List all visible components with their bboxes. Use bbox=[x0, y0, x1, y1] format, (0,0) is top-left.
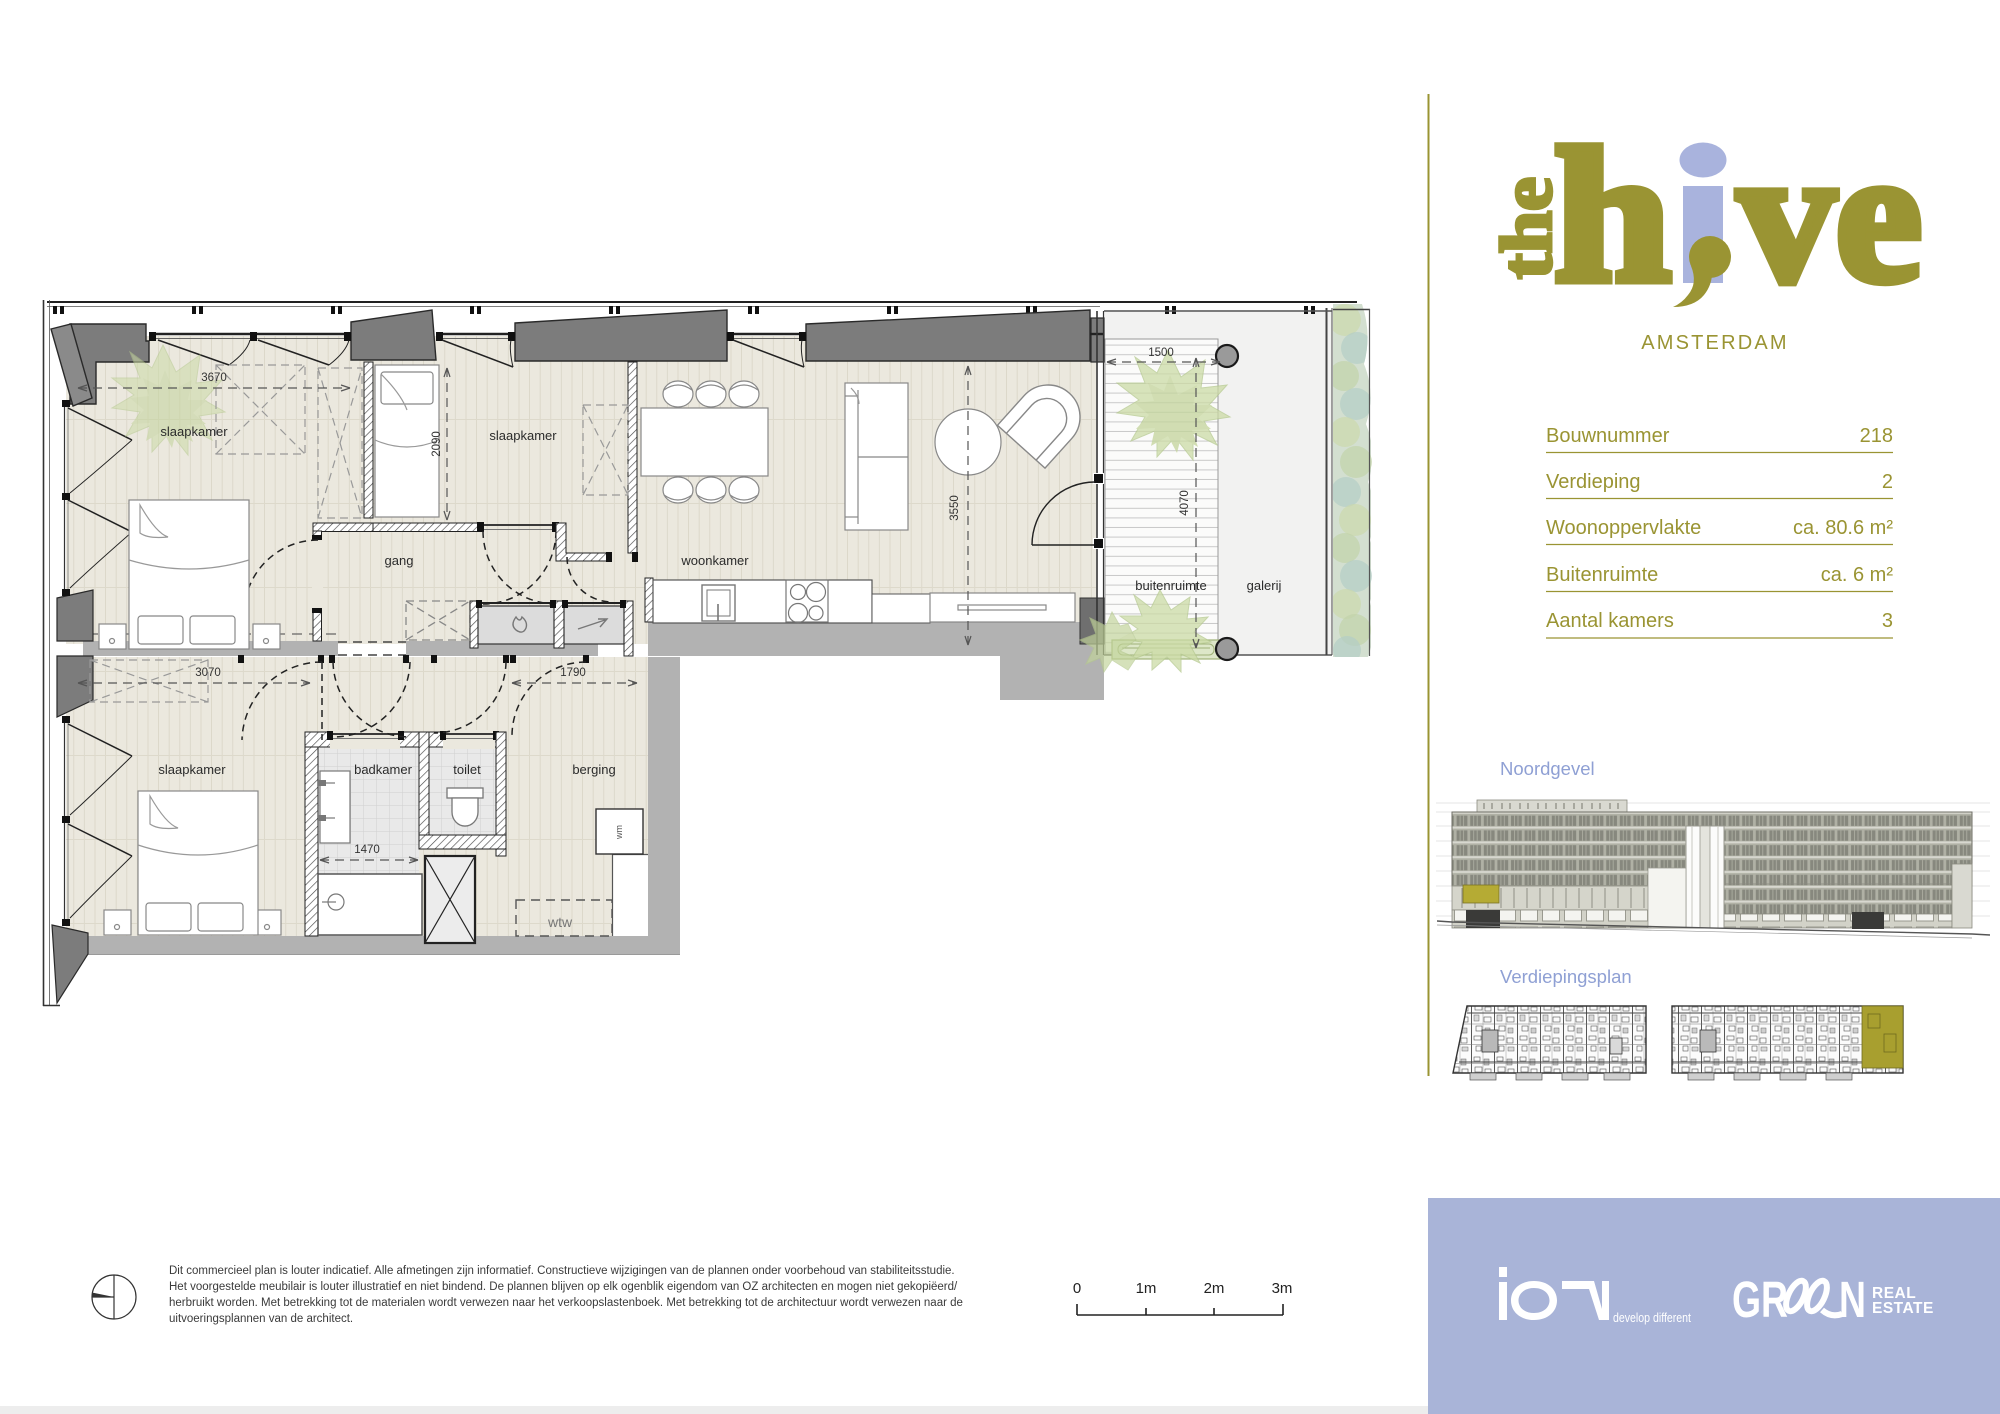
svg-text:3m: 3m bbox=[1272, 1280, 1293, 1297]
svg-text:Aantal kamers: Aantal kamers bbox=[1546, 610, 1674, 632]
svg-text:4070: 4070 bbox=[1179, 490, 1191, 516]
svg-text:Verdieping: Verdieping bbox=[1546, 471, 1641, 493]
svg-text:Bouwnummer: Bouwnummer bbox=[1546, 425, 1670, 447]
svg-text:1470: 1470 bbox=[354, 844, 380, 856]
svg-text:Dit commercieel plan is louter: Dit commercieel plan is louter indicatie… bbox=[169, 1265, 955, 1277]
svg-text:uitvoeringsplannen van de arch: uitvoeringsplannen van de architect. bbox=[169, 1313, 353, 1325]
svg-text:ve: ve bbox=[1738, 109, 1922, 322]
svg-text:slaapkamer: slaapkamer bbox=[489, 428, 557, 443]
svg-text:Verdiepingsplan: Verdiepingsplan bbox=[1500, 966, 1632, 987]
svg-text:slaapkamer: slaapkamer bbox=[160, 424, 228, 439]
svg-text:herbruikt worden. Met betrekki: herbruikt worden. Met betrekking tot de … bbox=[169, 1297, 963, 1309]
svg-text:N: N bbox=[1839, 1271, 1866, 1328]
svg-text:Het voorgestelde meubilair is: Het voorgestelde meubilair is louter ill… bbox=[169, 1281, 958, 1293]
svg-text:galerij: galerij bbox=[1247, 578, 1282, 593]
svg-text:3670: 3670 bbox=[201, 372, 227, 384]
svg-text:1790: 1790 bbox=[560, 667, 586, 679]
svg-text:buitenruimte: buitenruimte bbox=[1135, 578, 1207, 593]
svg-text:toilet: toilet bbox=[453, 762, 481, 777]
svg-text:slaapkamer: slaapkamer bbox=[158, 762, 226, 777]
svg-text:wm: wm bbox=[614, 825, 624, 840]
svg-text:develop different: develop different bbox=[1613, 1311, 1691, 1325]
svg-text:ca. 80.6 m²: ca. 80.6 m² bbox=[1793, 517, 1893, 539]
svg-text:badkamer: badkamer bbox=[354, 762, 412, 777]
svg-text:woonkamer: woonkamer bbox=[680, 553, 749, 568]
svg-text:2: 2 bbox=[1882, 471, 1893, 493]
svg-text:ESTATE: ESTATE bbox=[1872, 1300, 1934, 1317]
svg-text:3: 3 bbox=[1882, 610, 1893, 632]
svg-text:Noordgevel: Noordgevel bbox=[1500, 758, 1595, 779]
svg-text:GR: GR bbox=[1732, 1271, 1788, 1328]
svg-text:0: 0 bbox=[1073, 1280, 1081, 1297]
svg-text:1500: 1500 bbox=[1148, 347, 1174, 359]
svg-text:Woonoppervlakte: Woonoppervlakte bbox=[1546, 517, 1701, 539]
svg-text:3550: 3550 bbox=[949, 495, 961, 521]
svg-text:218: 218 bbox=[1860, 425, 1893, 447]
svg-text:2090: 2090 bbox=[431, 431, 443, 457]
svg-text:wtw: wtw bbox=[547, 914, 573, 930]
svg-text:gang: gang bbox=[385, 553, 414, 568]
svg-text:1m: 1m bbox=[1136, 1280, 1157, 1297]
svg-text:3070: 3070 bbox=[195, 667, 221, 679]
svg-text:AMSTERDAM: AMSTERDAM bbox=[1641, 332, 1789, 354]
svg-text:Buitenruimte: Buitenruimte bbox=[1546, 564, 1658, 586]
svg-text:berging: berging bbox=[572, 762, 615, 777]
svg-text:h: h bbox=[1554, 109, 1671, 322]
svg-text:ca. 6 m²: ca. 6 m² bbox=[1821, 564, 1894, 586]
svg-text:2m: 2m bbox=[1204, 1280, 1225, 1297]
